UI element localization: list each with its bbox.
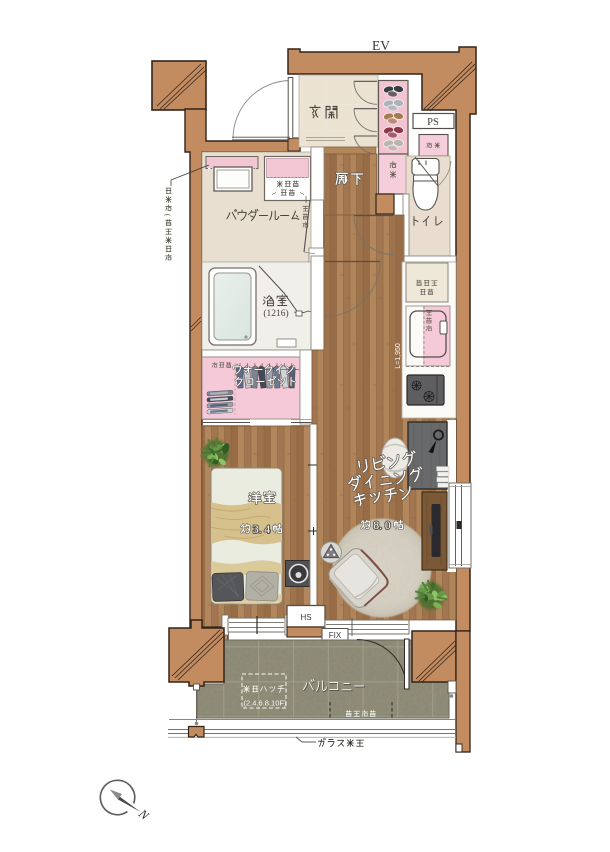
svg-text:FIX: FIX: [329, 631, 342, 640]
svg-text:PS: PS: [427, 117, 439, 128]
svg-text:N: N: [135, 806, 152, 823]
svg-text:3. 4: 3. 4: [253, 524, 271, 536]
svg-text:HS: HS: [300, 613, 311, 622]
svg-text:8. 0: 8. 0: [373, 520, 391, 532]
svg-text:(: (: [164, 214, 172, 217]
svg-text:EV: EV: [372, 38, 390, 53]
svg-text:(2.4.6.8.10F): (2.4.6.8.10F): [244, 699, 287, 708]
svg-text:(1216): (1216): [263, 308, 288, 319]
svg-text:L=1,950: L=1,950: [395, 343, 402, 369]
